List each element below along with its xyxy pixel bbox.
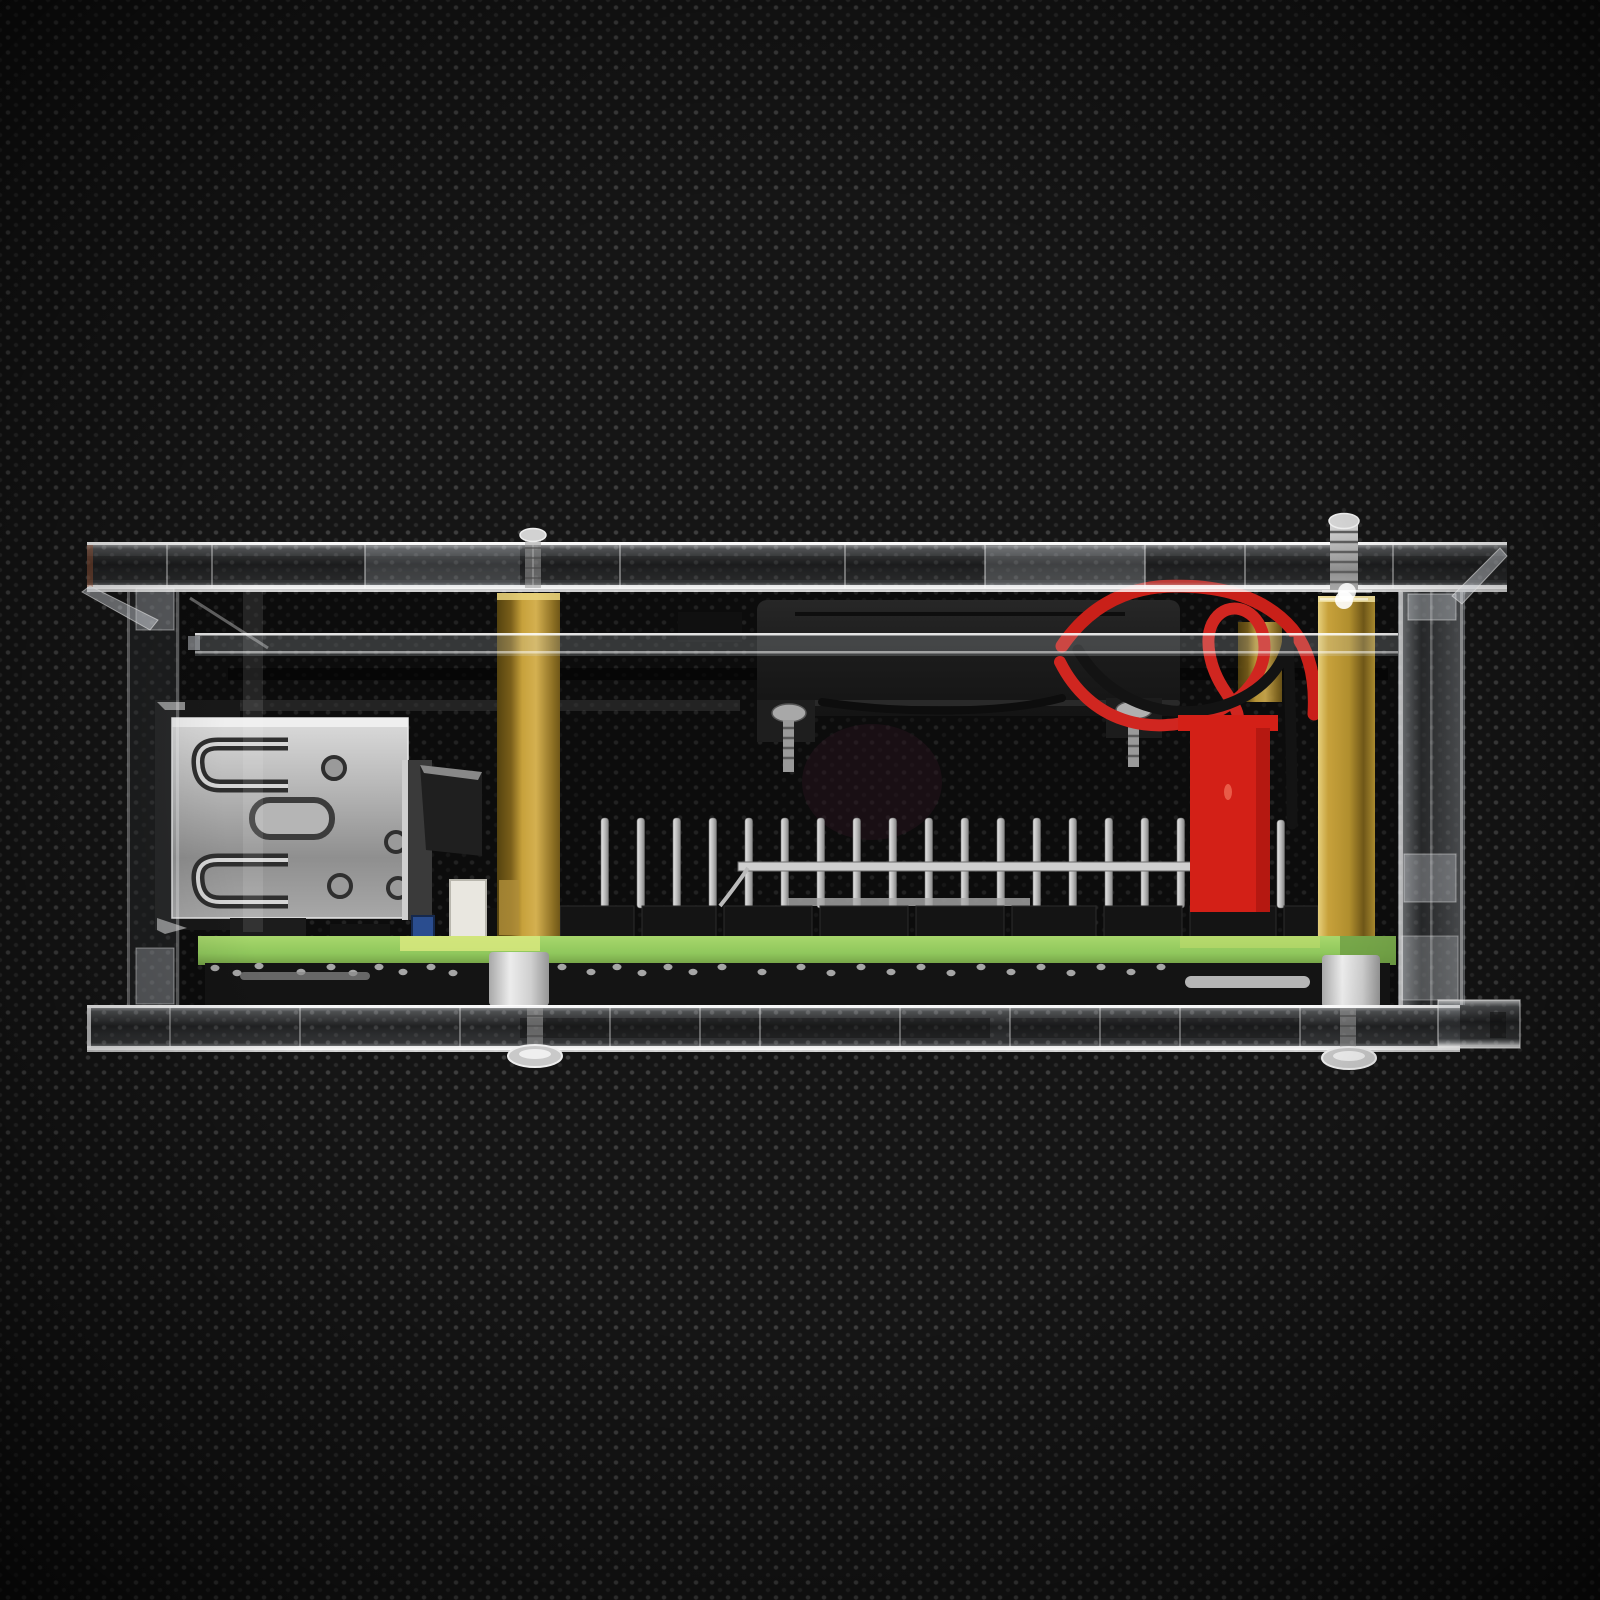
gpio-pin [1277,820,1285,908]
pcb-glow-right [1180,936,1320,948]
under-board-pin-bar [1185,976,1310,988]
solder-joint [211,965,220,971]
solder-joint [255,963,264,969]
screw-base-flare-ray [1322,590,1372,593]
acrylic-bottom-plate [87,1000,1520,1052]
solder-joint [664,964,673,970]
right-wall-tab-mid [1404,854,1456,902]
gpio-bent-pin-bar [738,862,1205,871]
solder-joint [638,970,647,976]
front-edge-bottom-line [195,651,1398,654]
interior-soft-reflection [230,700,740,711]
screw-bottom-left-head-shine [519,1049,551,1059]
bottom-plate-slot-2 [1010,1018,1300,1038]
usb-side-flange-edge [402,760,408,920]
solder-joint [449,970,458,976]
solder-joint [857,964,866,970]
solder-joint [1037,964,1046,970]
top-plate-tab-slot-2 [365,546,520,586]
solder-joint [327,964,336,970]
bottom-plate-slot-1 [520,1018,990,1038]
solder-joint [689,969,698,975]
top-plate-inner-dark [87,556,1507,580]
solder-joint [718,964,727,970]
pin-base-block [1284,906,1318,940]
pin-base-block [642,906,716,940]
left-wall-tab-bottom [136,948,174,1004]
fan-top-groove [795,612,1125,616]
solder-joint [558,964,567,970]
top-plate-top-edge [87,542,1507,545]
solder-joint [587,969,596,975]
nylon-spacer-left [489,952,549,1006]
left-wall-edge-outer [127,592,130,1005]
solder-joint [827,970,836,976]
solder-joint [887,969,896,975]
pin-base-block [820,906,908,940]
bottom-plate-right-tab [1438,1000,1520,1048]
solder-joint [1157,964,1166,970]
solder-joint [399,969,408,975]
gpio-pin [673,818,681,908]
solder-joint [427,964,436,970]
left-wall-edge-inner [176,592,179,1005]
solder-joint [1067,970,1076,976]
bottom-plate-top-edge [87,1005,1460,1008]
left-wall-body [127,592,180,1005]
top-plate-left-tint [87,545,93,587]
usb-shield-top-highlight [172,718,408,727]
solder-joint [375,964,384,970]
screw-top-left-shank [525,538,541,588]
solder-joint [977,964,986,970]
pin-base-block [1104,906,1182,940]
front-edge-top-line [195,633,1398,636]
under-board-pin-bar-2 [240,972,370,980]
screw-top-left-tip [520,529,546,542]
acrylic-front-wall-edge [188,633,1398,656]
right-wall-tab-top [1408,594,1456,620]
jst-body-shade [1256,728,1270,912]
pin-base-block [1012,906,1096,940]
solder-joint [758,969,767,975]
case-illustration [0,0,1600,1600]
brass-left-top-cap [497,593,560,600]
solder-joint [917,964,926,970]
bottom-plate-right-tab-slot [1490,1012,1506,1038]
red-jst-connector [1178,715,1278,912]
gpio-pin [709,818,717,908]
pcb-assembly [198,936,1396,1008]
right-wall-tab-bottom [1402,936,1458,1000]
usb-hole-2 [329,875,351,897]
solder-joint [1097,964,1106,970]
solder-joint [1127,969,1136,975]
screw-bottom-left-shank [527,1008,543,1050]
gpio-pin [637,818,645,908]
jst-highlight [1224,784,1232,800]
brass-left-base-glint [499,880,519,935]
pin-base-block [560,906,634,940]
right-wall-edge-inner [1460,592,1463,1005]
screw-top-right-tip [1329,514,1359,529]
product-photo-scene [0,0,1600,1600]
solder-joint [797,964,806,970]
solder-joint [947,970,956,976]
solder-joint [1007,969,1016,975]
acrylic-right-wall [1398,592,1465,1005]
gpio-bent-pin-bar-2 [788,898,1030,906]
pin-base-block [916,906,1004,940]
screw-bottom-right-head-shine [1333,1051,1365,1061]
solder-joint [613,964,622,970]
pin-base-block [724,906,812,940]
usb-hole-1 [323,757,345,779]
bottom-plate-left-edge [87,1008,91,1048]
usb-oval-slot [252,800,332,837]
gpio-pin [601,818,609,908]
pcb-edge-component-2 [330,924,390,938]
fan-screw-left-washer [772,704,806,722]
bottom-plate-bottom-edge [87,1046,1460,1050]
top-plate-tab-slot [985,546,1145,586]
pcb-glow-left [400,936,540,951]
screw-bottom-right-shank [1340,1008,1356,1050]
nylon-spacer-right [1322,955,1380,1008]
top-plate-bottom-edge [87,585,1507,589]
